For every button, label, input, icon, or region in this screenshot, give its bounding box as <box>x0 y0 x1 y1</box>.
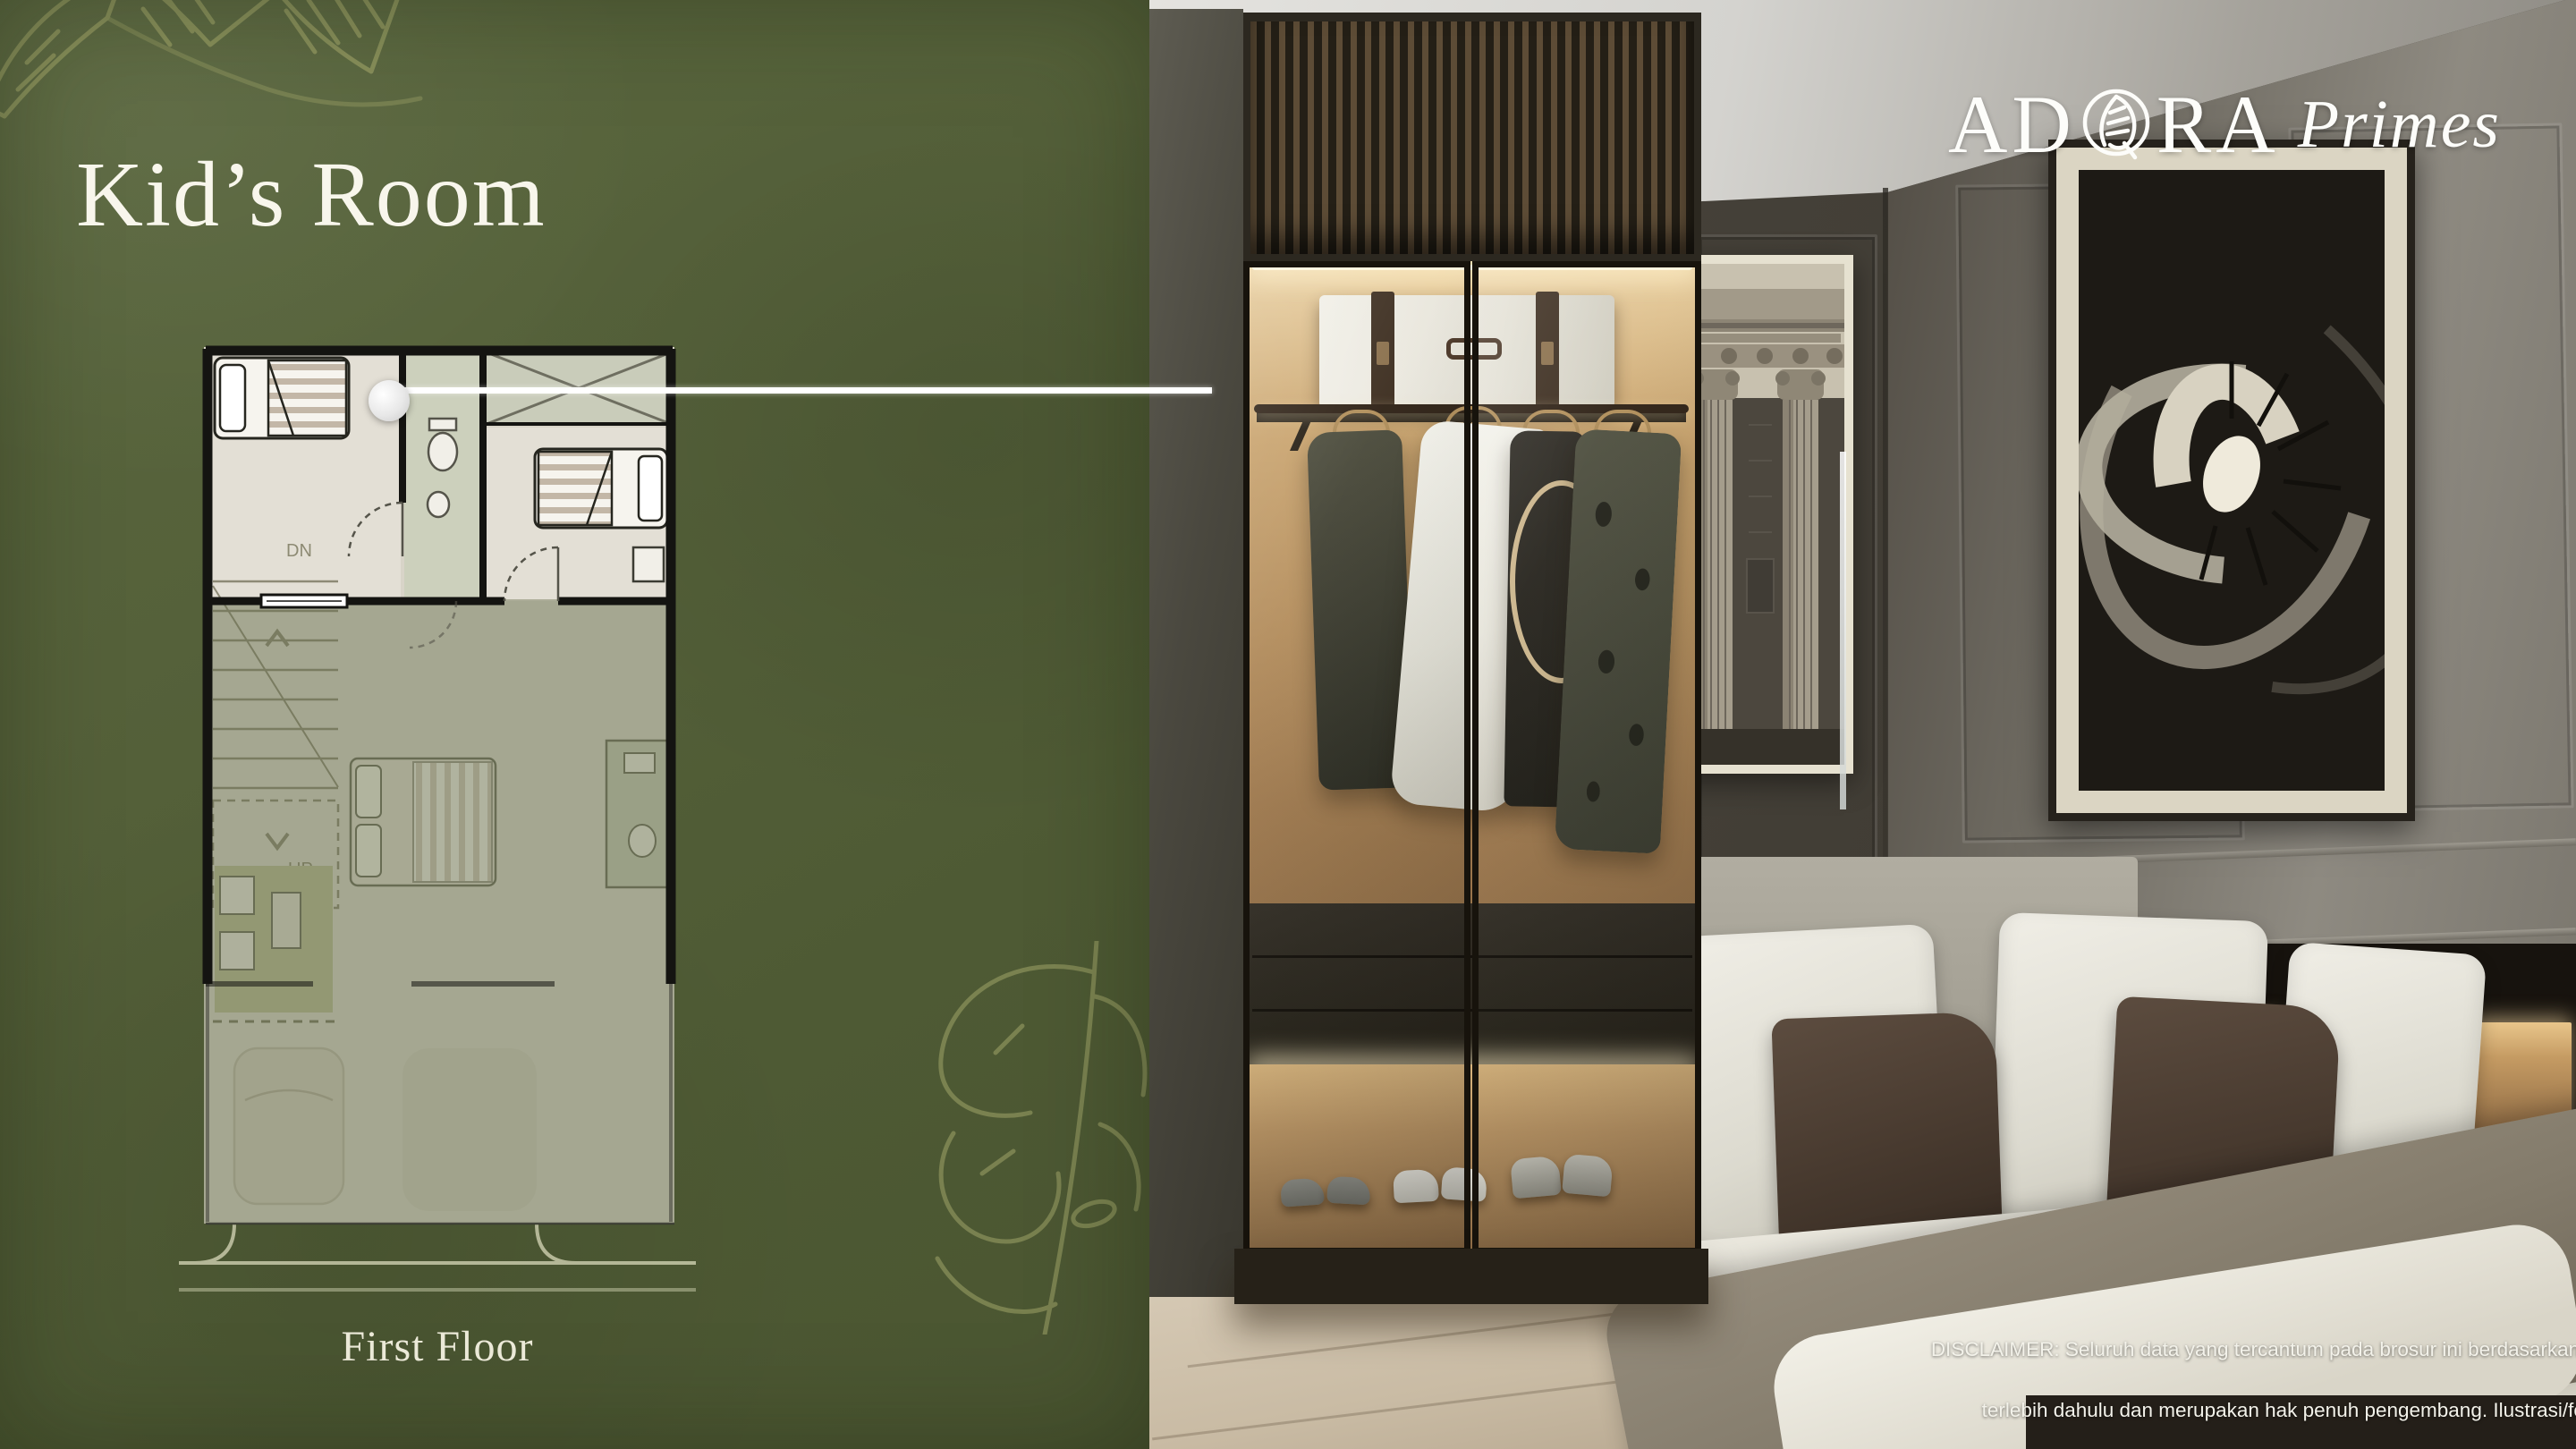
callout-dot <box>369 380 410 421</box>
plan-bed-left <box>215 358 349 438</box>
floor-plan: DN UP <box>179 313 696 1324</box>
disclaimer-line2: terlebih dahulu dan merupakan hak penuh … <box>1910 1395 2576 1426</box>
disclaimer: DISCLAIMER: Seluruh data yang tercantum … <box>1910 1335 2576 1425</box>
callout-line <box>389 387 1212 394</box>
disclaimer-line1: DISCLAIMER: Seluruh data yang tercantum … <box>1910 1335 2576 1395</box>
wardrobe-top-cabinet <box>1243 13 1701 261</box>
leaf-sketch-bottom-icon <box>911 941 1149 1335</box>
page-title: Kid’s Room <box>76 141 547 248</box>
plan-label-dn: DN <box>286 541 312 561</box>
brand-part2: RA <box>2157 77 2280 172</box>
wardrobe-plinth <box>1234 1249 1708 1304</box>
green-panel: Kid’s Room <box>0 0 1149 1449</box>
brand-leaf-ring-icon <box>2078 86 2155 163</box>
plan-fade-overlay <box>204 599 674 1224</box>
frame-highlight <box>1840 452 1846 809</box>
brand-suffix: Primes <box>2298 86 2501 164</box>
interior-render: AD RA Primes DISCLAIMER: Seluruh data ya… <box>1149 0 2576 1449</box>
wardrobe-side-panel <box>1149 9 1243 1297</box>
plan-road <box>179 1224 696 1290</box>
brand-logo: AD RA Primes <box>1948 77 2501 172</box>
floor-caption: First Floor <box>179 1322 696 1371</box>
glass-door-left <box>1243 261 1470 1254</box>
wardrobe-slats <box>1250 21 1694 254</box>
glass-door-right <box>1472 261 1701 1254</box>
artwork-spiral-staircase <box>2048 140 2415 821</box>
brand-part1: AD <box>1948 77 2076 172</box>
brochure-page: Kid’s Room <box>0 0 2576 1449</box>
